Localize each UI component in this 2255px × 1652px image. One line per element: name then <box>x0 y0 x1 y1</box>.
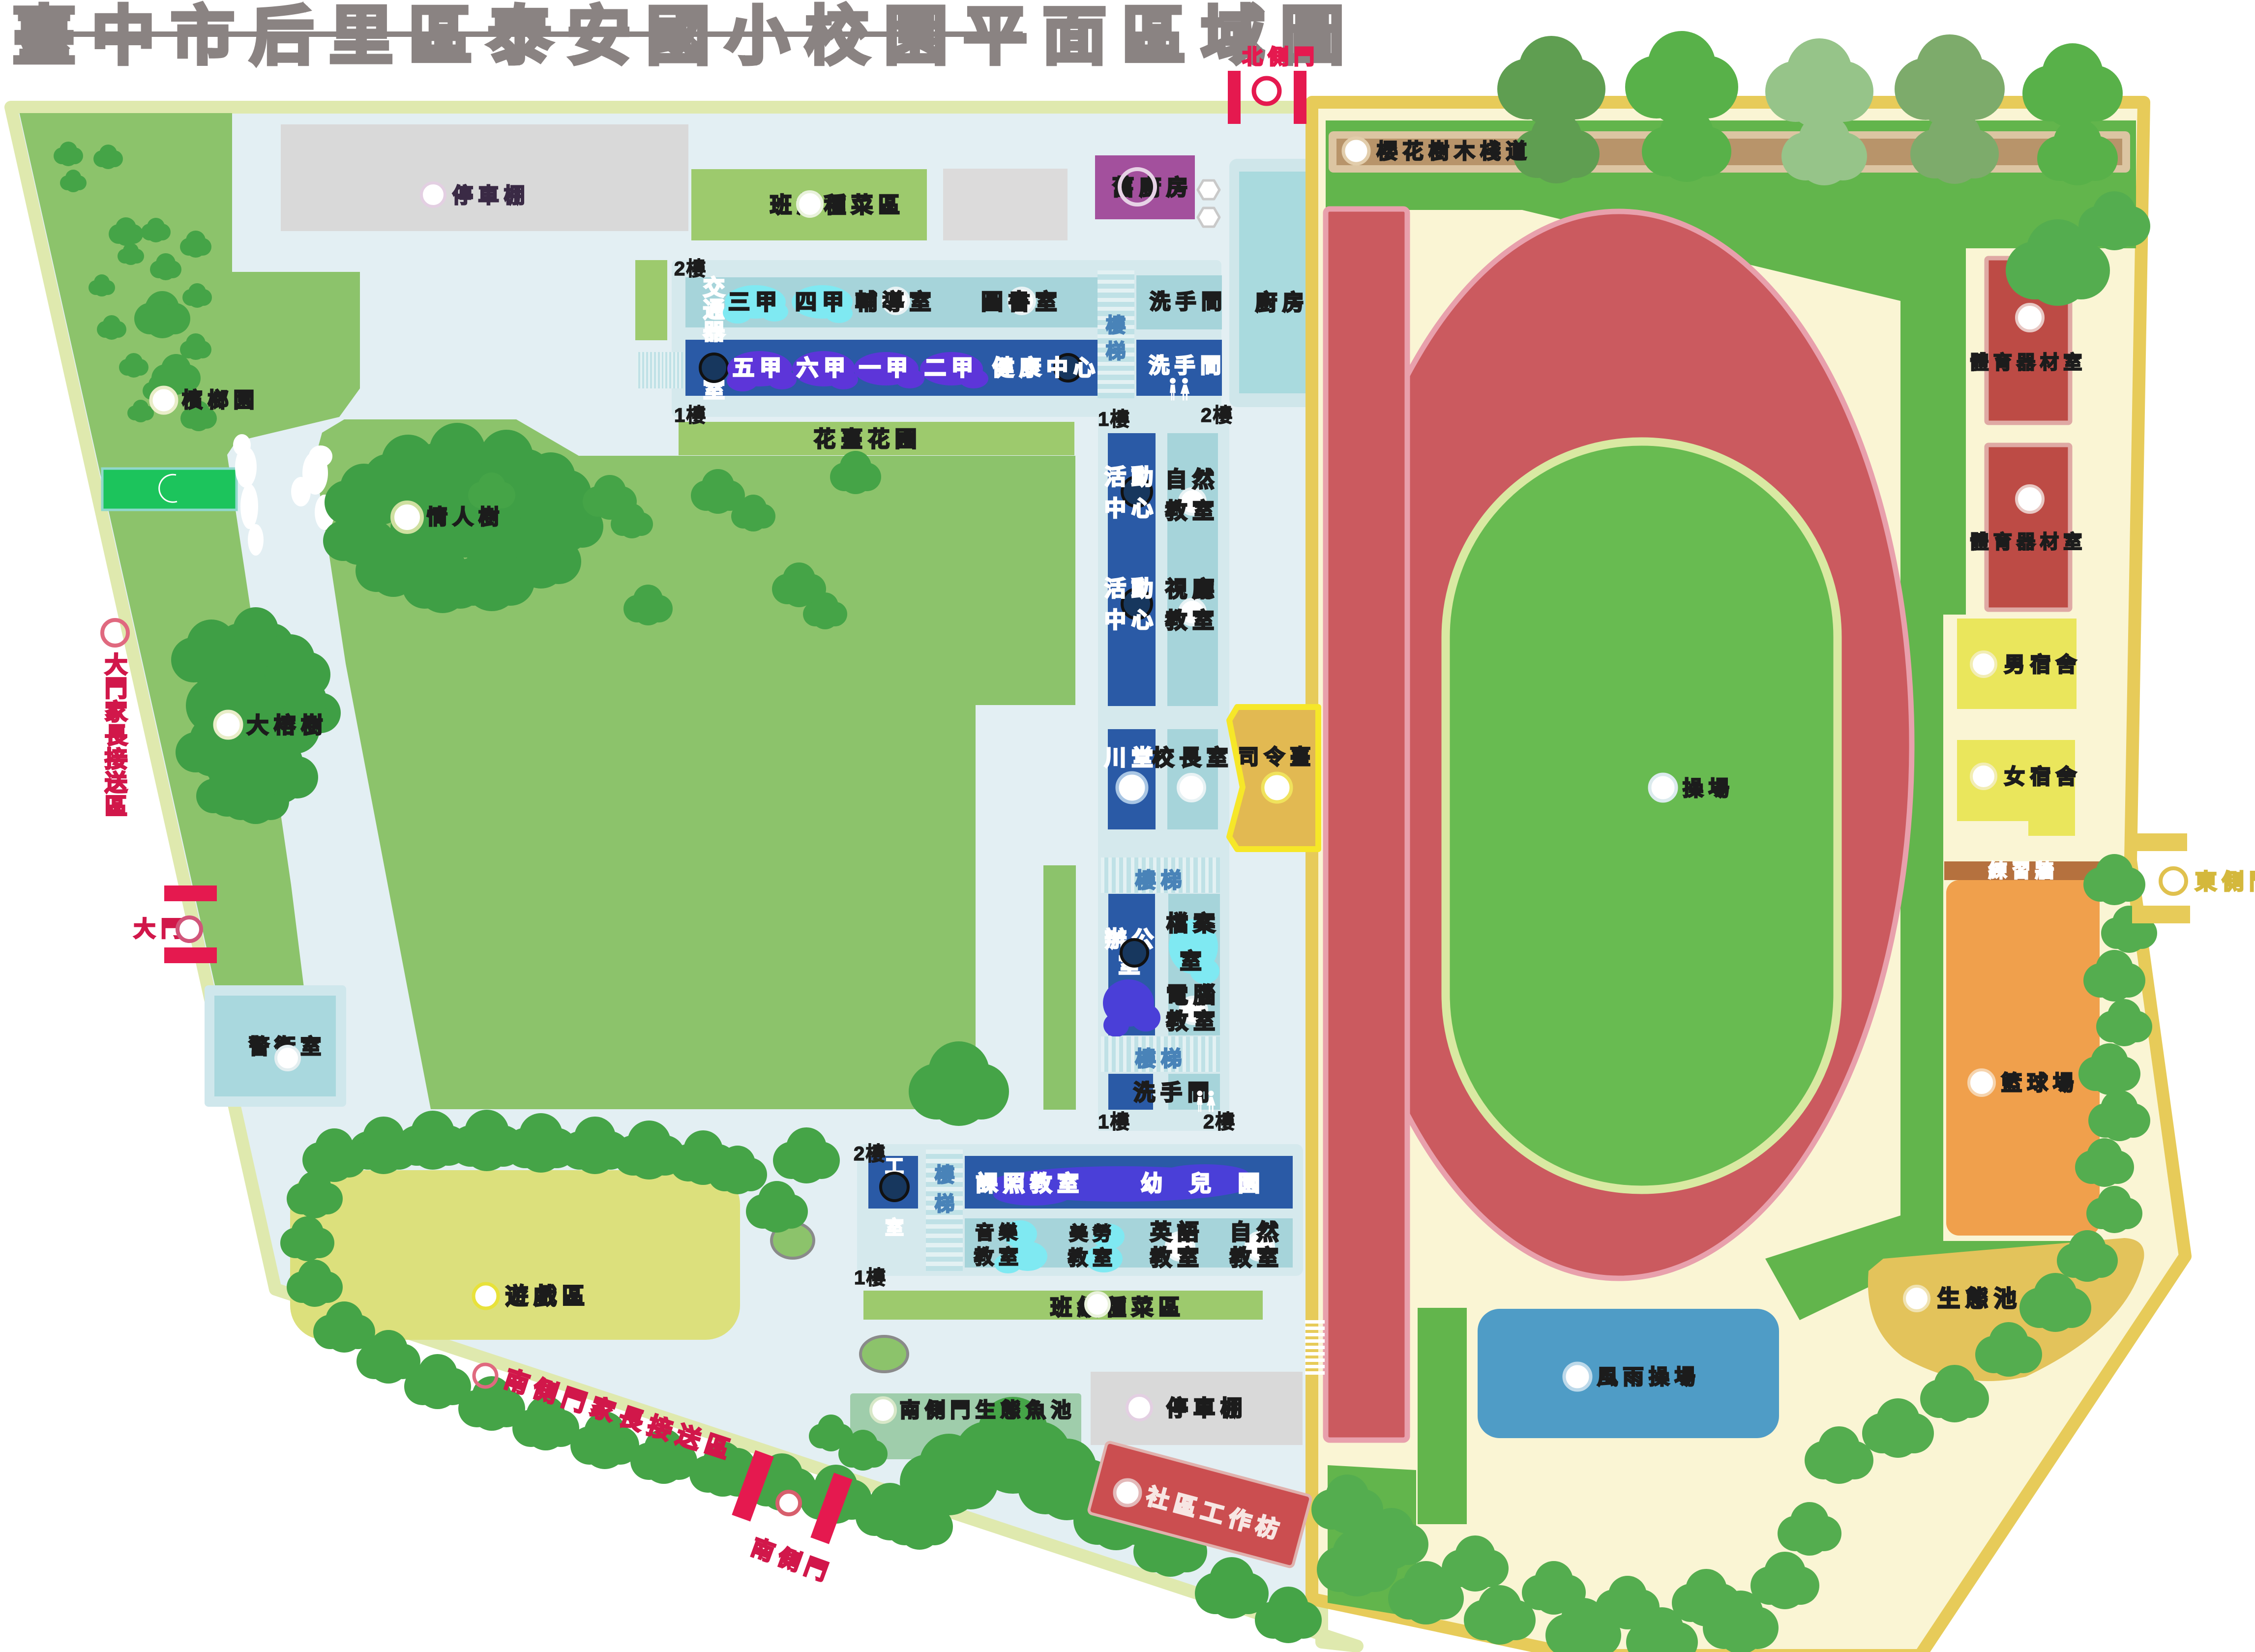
svg-text:幼兒園: 幼兒園 <box>1141 1172 1287 1196</box>
svg-text:梯: 梯 <box>935 1193 954 1215</box>
svg-text:區: 區 <box>105 794 127 819</box>
svg-text:廚房: 廚房 <box>1255 290 1309 315</box>
svg-text:司令臺: 司令臺 <box>1238 745 1316 768</box>
svg-text:教室: 教室 <box>1166 1009 1220 1033</box>
svg-text:遊戲區: 遊戲區 <box>505 1283 591 1309</box>
svg-text:練習牆: 練習牆 <box>1988 861 2059 882</box>
svg-text:樓梯: 樓梯 <box>1135 869 1187 892</box>
svg-text:情人樹: 情人樹 <box>427 505 504 529</box>
svg-text:梯: 梯 <box>1106 341 1126 362</box>
svg-text:班級種菜區: 班級種菜區 <box>1050 1296 1186 1320</box>
svg-text:操場: 操場 <box>1683 777 1734 800</box>
svg-text:通: 通 <box>703 298 725 322</box>
svg-text:英語: 英語 <box>1150 1220 1204 1244</box>
svg-text:大榕樹: 大榕樹 <box>247 713 328 737</box>
svg-text:班級種菜區: 班級種菜區 <box>770 193 905 217</box>
svg-text:教室: 教室 <box>1165 608 1219 633</box>
svg-text:2樓: 2樓 <box>854 1143 886 1165</box>
svg-text:2樓: 2樓 <box>1201 405 1233 426</box>
svg-text:樓: 樓 <box>935 1164 954 1186</box>
svg-text:中心: 中心 <box>1104 608 1158 632</box>
svg-text:視廳: 視廳 <box>1165 577 1219 601</box>
svg-text:家: 家 <box>105 699 127 725</box>
svg-text:音樂: 音樂 <box>975 1223 1022 1243</box>
svg-text:檔案: 檔案 <box>1166 912 1220 936</box>
svg-text:六甲: 六甲 <box>797 356 851 380</box>
svg-text:1樓: 1樓 <box>1098 409 1130 430</box>
svg-text:樓: 樓 <box>1106 315 1126 336</box>
svg-text:男宿舍: 男宿舍 <box>2004 653 2082 676</box>
svg-text:二甲: 二甲 <box>924 356 979 380</box>
svg-text:自然: 自然 <box>1165 468 1219 492</box>
svg-text:健康中心: 健康中心 <box>992 356 1100 380</box>
svg-text:川堂: 川堂 <box>1104 746 1158 770</box>
svg-text:教室: 教室 <box>1068 1247 1117 1269</box>
svg-text:1樓: 1樓 <box>1098 1111 1130 1133</box>
svg-text:停車棚: 停車棚 <box>452 184 530 207</box>
svg-text:三甲: 三甲 <box>728 290 782 314</box>
svg-text:洗手間: 洗手間 <box>1149 354 1226 377</box>
svg-text:大: 大 <box>105 652 127 678</box>
svg-text:東側門: 東側門 <box>2195 870 2255 894</box>
svg-text:教室: 教室 <box>1150 1245 1204 1270</box>
svg-text:接: 接 <box>105 746 127 772</box>
svg-text:一甲: 一甲 <box>859 356 913 380</box>
svg-text:美勞: 美勞 <box>1069 1224 1116 1244</box>
svg-text:長: 長 <box>105 723 128 748</box>
svg-text:送: 送 <box>105 770 127 796</box>
svg-text:校長室: 校長室 <box>1153 745 1234 770</box>
svg-text:花臺花圃: 花臺花圃 <box>814 427 922 451</box>
svg-text:室: 室 <box>1180 949 1207 973</box>
svg-text:風雨操場: 風雨操場 <box>1597 1365 1700 1388</box>
svg-text:北側門: 北側門 <box>1242 45 1320 68</box>
svg-text:檳榔園: 檳榔園 <box>182 388 260 412</box>
svg-text:電腦: 電腦 <box>1166 983 1220 1007</box>
svg-text:中心: 中心 <box>1104 497 1158 521</box>
svg-text:2樓: 2樓 <box>674 258 707 280</box>
svg-text:自然: 自然 <box>1230 1220 1284 1244</box>
svg-text:籃球場: 籃球場 <box>2001 1071 2079 1094</box>
svg-text:門: 門 <box>105 676 127 701</box>
svg-text:室: 室 <box>885 1217 904 1239</box>
svg-text:四甲: 四甲 <box>795 290 849 314</box>
svg-text:輔導室: 輔導室 <box>856 290 937 314</box>
svg-text:體育器材室: 體育器材室 <box>1970 531 2087 553</box>
svg-text:停車棚: 停車棚 <box>1166 1396 1247 1420</box>
svg-text:洗手間: 洗手間 <box>1150 290 1227 313</box>
svg-text:1樓: 1樓 <box>854 1267 887 1289</box>
svg-text:活動: 活動 <box>1104 465 1158 489</box>
svg-text:2樓: 2樓 <box>1203 1111 1236 1133</box>
svg-text:教室: 教室 <box>1165 499 1219 523</box>
svg-text:活動: 活動 <box>1104 577 1158 601</box>
svg-text:女宿舍: 女宿舍 <box>2004 765 2082 788</box>
svg-text:1樓: 1樓 <box>674 405 707 426</box>
svg-text:課照教室: 課照教室 <box>976 1171 1084 1196</box>
svg-text:器: 器 <box>703 320 725 344</box>
svg-text:圖書室: 圖書室 <box>981 290 1063 314</box>
svg-text:五甲: 五甲 <box>733 356 787 380</box>
svg-text:櫻花樹木棧道: 櫻花樹木棧道 <box>1376 140 1532 163</box>
svg-text:南側門生態魚池: 南側門生態魚池 <box>900 1399 1076 1421</box>
svg-text:樓梯: 樓梯 <box>1135 1047 1187 1070</box>
svg-text:生態池: 生態池 <box>1937 1286 2022 1311</box>
svg-text:教室: 教室 <box>974 1246 1023 1268</box>
svg-text:體育器材室: 體育器材室 <box>1970 352 2087 373</box>
svg-text:教室: 教室 <box>1230 1245 1284 1270</box>
